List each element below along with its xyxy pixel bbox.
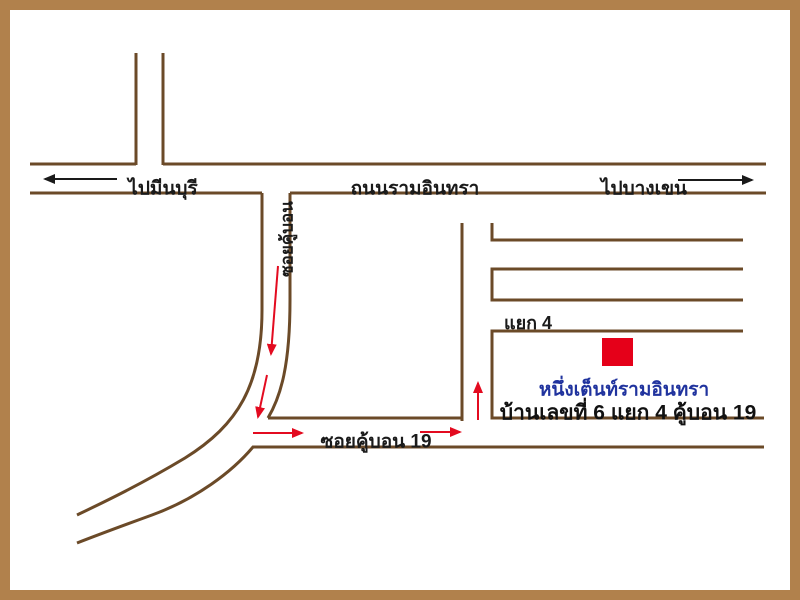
route-arrow-down-2-icon: [258, 375, 267, 417]
soi-khubon-vertical-label: ซอยคู้บอน: [279, 201, 296, 277]
roads-layer: [10, 10, 790, 590]
route-arrow-down-1-icon: [271, 266, 278, 354]
destination-address: บ้านเลขที่ 6 แยก 4 คู้บอน 19: [500, 403, 757, 424]
junction-4-label: แยก 4: [504, 314, 552, 332]
direction-label-bangkhen: ไปบางเขน: [601, 180, 687, 199]
soi-khubon-curve: [77, 193, 290, 515]
direction-label-minburi: ไปมีนบุรี: [128, 180, 197, 199]
soi-khubon-19-label: ซอยคู้บอน 19: [320, 433, 431, 452]
location-map: ไปมีนบุรี ถนนรามอินทรา ไปบางเขน ซอยคู้บอ…: [0, 0, 800, 600]
main-road-name: ถนนรามอินทรา: [351, 180, 480, 199]
top-branch-road: [136, 53, 163, 165]
destination-name: หนึ่งเต็นท์รามอินทรา: [539, 381, 709, 400]
destination-marker-icon: [602, 338, 633, 366]
